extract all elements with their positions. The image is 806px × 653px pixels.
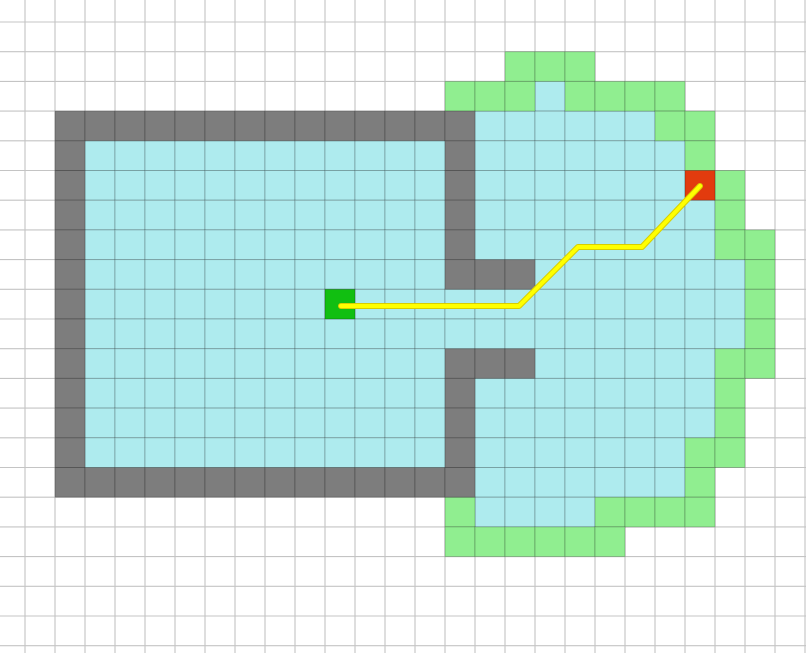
wall-cell <box>55 468 85 498</box>
wall-cell <box>295 111 325 141</box>
frontier-cell <box>655 111 685 141</box>
explored-cell <box>685 230 715 260</box>
explored-cell <box>355 319 385 349</box>
explored-cell <box>175 408 205 438</box>
frontier-cell <box>595 527 625 557</box>
wall-cell <box>205 468 235 498</box>
explored-cell <box>265 171 295 201</box>
wall-cell <box>445 378 475 408</box>
explored-cell <box>625 468 655 498</box>
explored-cell <box>235 319 265 349</box>
wall-cell <box>55 378 85 408</box>
explored-cell <box>355 349 385 379</box>
wall-cell <box>55 349 85 379</box>
explored-cell <box>145 230 175 260</box>
explored-cell <box>85 260 115 290</box>
wall-cell <box>55 408 85 438</box>
explored-cell <box>685 378 715 408</box>
explored-cell <box>625 141 655 171</box>
explored-cell <box>685 349 715 379</box>
explored-cell <box>115 289 145 319</box>
frontier-cell <box>595 81 625 111</box>
explored-cell <box>85 141 115 171</box>
explored-cell <box>205 408 235 438</box>
explored-cell <box>295 438 325 468</box>
explored-cell <box>415 171 445 201</box>
explored-cell <box>355 200 385 230</box>
wall-cell <box>445 171 475 201</box>
explored-cell <box>325 141 355 171</box>
frontier-cell <box>745 230 775 260</box>
wall-cell <box>445 230 475 260</box>
explored-cell <box>505 141 535 171</box>
explored-cell <box>565 438 595 468</box>
frontier-cell <box>475 527 505 557</box>
explored-cell <box>385 230 415 260</box>
wall-cell <box>445 349 475 379</box>
explored-cell <box>565 468 595 498</box>
wall-cell <box>115 111 145 141</box>
explored-cell <box>385 378 415 408</box>
explored-cell <box>535 438 565 468</box>
explored-cell <box>265 319 295 349</box>
explored-cell <box>385 408 415 438</box>
wall-cell <box>445 260 475 290</box>
frontier-cell <box>685 438 715 468</box>
explored-cell <box>175 289 205 319</box>
explored-cell <box>415 260 445 290</box>
explored-cell <box>535 349 565 379</box>
explored-cell <box>355 408 385 438</box>
explored-cell <box>565 497 595 527</box>
explored-cell <box>385 349 415 379</box>
explored-cell <box>115 200 145 230</box>
explored-cell <box>655 230 685 260</box>
wall-cell <box>325 111 355 141</box>
wall-cell <box>415 468 445 498</box>
explored-cell <box>685 408 715 438</box>
explored-cell <box>265 349 295 379</box>
explored-cell <box>295 171 325 201</box>
explored-cell <box>85 349 115 379</box>
explored-cell <box>655 349 685 379</box>
wall-cell <box>55 260 85 290</box>
explored-cell <box>625 438 655 468</box>
explored-cell <box>145 438 175 468</box>
explored-cell <box>85 378 115 408</box>
frontier-cell <box>505 52 535 82</box>
explored-cell <box>115 319 145 349</box>
explored-cell <box>715 260 745 290</box>
wall-cell <box>505 260 535 290</box>
explored-cell <box>595 319 625 349</box>
explored-cell <box>325 230 355 260</box>
explored-cell <box>415 408 445 438</box>
explored-cell <box>565 378 595 408</box>
explored-cell <box>205 200 235 230</box>
wall-cell <box>55 438 85 468</box>
explored-cell <box>505 497 535 527</box>
explored-cell <box>535 171 565 201</box>
explored-cell <box>385 260 415 290</box>
explored-cell <box>145 378 175 408</box>
explored-cell <box>145 260 175 290</box>
explored-cell <box>655 408 685 438</box>
frontier-cell <box>715 438 745 468</box>
explored-cell <box>475 200 505 230</box>
explored-cell <box>685 260 715 290</box>
explored-cell <box>505 230 535 260</box>
explored-cell <box>175 260 205 290</box>
explored-cell <box>505 111 535 141</box>
frontier-cell <box>625 81 655 111</box>
explored-cell <box>595 378 625 408</box>
explored-cell <box>595 349 625 379</box>
explored-cell <box>295 141 325 171</box>
explored-cell <box>235 141 265 171</box>
explored-cell <box>655 378 685 408</box>
wall-cell <box>55 141 85 171</box>
explored-cell <box>265 200 295 230</box>
explored-cell <box>325 171 355 201</box>
frontier-cell <box>685 141 715 171</box>
explored-cell <box>235 230 265 260</box>
frontier-cell <box>655 81 685 111</box>
explored-cell <box>535 111 565 141</box>
wall-cell <box>145 468 175 498</box>
explored-cell <box>445 319 475 349</box>
explored-cell <box>235 349 265 379</box>
explored-cell <box>475 230 505 260</box>
explored-cell <box>685 319 715 349</box>
explored-cell <box>115 141 145 171</box>
explored-cell <box>115 438 145 468</box>
frontier-cell <box>715 200 745 230</box>
wall-cell <box>355 111 385 141</box>
explored-cell <box>295 230 325 260</box>
explored-cell <box>145 349 175 379</box>
explored-cell <box>475 497 505 527</box>
explored-cell <box>175 378 205 408</box>
explored-cell <box>355 141 385 171</box>
explored-cell <box>235 438 265 468</box>
wall-cell <box>205 111 235 141</box>
explored-cell <box>505 319 535 349</box>
explored-cell <box>145 200 175 230</box>
explored-cell <box>85 319 115 349</box>
explored-cell <box>265 408 295 438</box>
wall-cell <box>265 111 295 141</box>
explored-cell <box>115 378 145 408</box>
explored-cell <box>205 438 235 468</box>
frontier-cell <box>625 497 655 527</box>
explored-cell <box>535 81 565 111</box>
wall-cell <box>55 171 85 201</box>
wall-cell <box>115 468 145 498</box>
explored-cell <box>175 319 205 349</box>
explored-cell <box>655 319 685 349</box>
explored-cell <box>415 378 445 408</box>
explored-cell <box>205 378 235 408</box>
explored-cell <box>85 230 115 260</box>
explored-cell <box>325 260 355 290</box>
frontier-cell <box>715 230 745 260</box>
explored-cell <box>115 171 145 201</box>
explored-cell <box>625 378 655 408</box>
explored-cell <box>175 438 205 468</box>
explored-cell <box>175 200 205 230</box>
explored-cell <box>295 378 325 408</box>
explored-cell <box>175 230 205 260</box>
explored-cell <box>325 319 355 349</box>
wall-cell <box>175 111 205 141</box>
explored-cell <box>385 171 415 201</box>
explored-cell <box>655 171 685 201</box>
wall-cell <box>235 111 265 141</box>
explored-cell <box>625 289 655 319</box>
explored-cell <box>295 289 325 319</box>
frontier-cell <box>715 171 745 201</box>
explored-cell <box>235 378 265 408</box>
explored-cell <box>325 408 355 438</box>
wall-cell <box>445 438 475 468</box>
explored-cell <box>625 111 655 141</box>
wall-cell <box>235 468 265 498</box>
wall-cell <box>445 200 475 230</box>
wall-cell <box>445 408 475 438</box>
explored-cell <box>595 260 625 290</box>
explored-cell <box>175 171 205 201</box>
frontier-cell <box>445 497 475 527</box>
explored-cell <box>205 230 235 260</box>
explored-cell <box>325 438 355 468</box>
explored-cell <box>145 171 175 201</box>
explored-cell <box>415 438 445 468</box>
explored-cell <box>355 171 385 201</box>
explored-cell <box>565 289 595 319</box>
frontier-cell <box>685 111 715 141</box>
explored-cell <box>685 200 715 230</box>
explored-cell <box>385 200 415 230</box>
explored-cell <box>295 319 325 349</box>
explored-cell <box>535 468 565 498</box>
wall-cell <box>325 468 355 498</box>
explored-cell <box>595 468 625 498</box>
explored-cell <box>355 230 385 260</box>
explored-cell <box>325 200 355 230</box>
explored-cell <box>85 289 115 319</box>
explored-cell <box>415 349 445 379</box>
explored-cell <box>475 141 505 171</box>
frontier-cell <box>445 527 475 557</box>
wall-cell <box>85 468 115 498</box>
frontier-cell <box>745 260 775 290</box>
wall-cell <box>445 468 475 498</box>
explored-cell <box>655 289 685 319</box>
explored-cell <box>355 378 385 408</box>
explored-cell <box>85 438 115 468</box>
explored-cell <box>205 349 235 379</box>
explored-cell <box>655 438 685 468</box>
explored-cell <box>415 200 445 230</box>
explored-cell <box>235 408 265 438</box>
explored-cell <box>385 438 415 468</box>
wall-cell <box>475 349 505 379</box>
explored-cell <box>205 260 235 290</box>
explored-cell <box>85 408 115 438</box>
explored-cell <box>565 319 595 349</box>
explored-cell <box>595 171 625 201</box>
explored-cell <box>655 260 685 290</box>
wall-cell <box>265 468 295 498</box>
frontier-cell <box>535 52 565 82</box>
frontier-cell <box>475 81 505 111</box>
occupancy-grid-map <box>0 0 806 653</box>
explored-cell <box>535 141 565 171</box>
explored-cell <box>595 408 625 438</box>
explored-cell <box>565 141 595 171</box>
explored-cell <box>505 378 535 408</box>
frontier-cell <box>445 81 475 111</box>
explored-cell <box>535 289 565 319</box>
frontier-cell <box>505 527 535 557</box>
frontier-cell <box>685 468 715 498</box>
frontier-cell <box>715 408 745 438</box>
explored-cell <box>475 468 505 498</box>
explored-cell <box>205 141 235 171</box>
explored-cell <box>415 230 445 260</box>
explored-cell <box>565 408 595 438</box>
wall-cell <box>505 349 535 379</box>
explored-cell <box>535 497 565 527</box>
explored-cell <box>475 408 505 438</box>
frontier-cell <box>565 81 595 111</box>
explored-cell <box>685 289 715 319</box>
frontier-cell <box>685 497 715 527</box>
frontier-cell <box>535 527 565 557</box>
explored-cell <box>295 260 325 290</box>
frontier-cell <box>505 81 535 111</box>
explored-cell <box>505 468 535 498</box>
explored-cell <box>385 319 415 349</box>
explored-cell <box>625 171 655 201</box>
wall-cell <box>385 468 415 498</box>
explored-cell <box>265 438 295 468</box>
explored-cell <box>715 319 745 349</box>
explored-cell <box>505 171 535 201</box>
explored-cell <box>475 171 505 201</box>
frontier-cell <box>745 319 775 349</box>
explored-cell <box>595 289 625 319</box>
explored-cell <box>625 319 655 349</box>
explored-cell <box>85 200 115 230</box>
wall-cell <box>415 111 445 141</box>
frontier-cell <box>715 349 745 379</box>
explored-cell <box>415 141 445 171</box>
explored-cell <box>235 171 265 201</box>
explored-cell <box>175 349 205 379</box>
explored-cell <box>565 111 595 141</box>
frontier-cell <box>565 527 595 557</box>
explored-cell <box>715 289 745 319</box>
explored-cell <box>535 230 565 260</box>
wall-cell <box>85 111 115 141</box>
explored-cell <box>625 349 655 379</box>
wall-cell <box>55 230 85 260</box>
explored-cell <box>505 408 535 438</box>
explored-cell <box>475 319 505 349</box>
explored-cell <box>205 319 235 349</box>
explored-cell <box>265 289 295 319</box>
explored-cell <box>475 378 505 408</box>
explored-cell <box>265 378 295 408</box>
explored-cell <box>265 230 295 260</box>
explored-cell <box>415 319 445 349</box>
wall-cell <box>55 111 85 141</box>
wall-cell <box>55 289 85 319</box>
explored-cell <box>265 260 295 290</box>
explored-cell <box>145 408 175 438</box>
explored-cell <box>625 260 655 290</box>
explored-cell <box>535 200 565 230</box>
explored-cell <box>145 141 175 171</box>
explored-cell <box>625 200 655 230</box>
explored-cell <box>565 171 595 201</box>
explored-cell <box>475 111 505 141</box>
explored-cell <box>535 378 565 408</box>
wall-cell <box>55 200 85 230</box>
explored-cell <box>355 260 385 290</box>
wall-cell <box>445 111 475 141</box>
explored-cell <box>295 349 325 379</box>
grid-map-svg <box>0 0 806 653</box>
wall-cell <box>385 111 415 141</box>
explored-cell <box>85 171 115 201</box>
frontier-cell <box>655 497 685 527</box>
explored-cell <box>235 200 265 230</box>
explored-cell <box>595 200 625 230</box>
explored-cell <box>475 438 505 468</box>
explored-cell <box>235 260 265 290</box>
explored-cell <box>115 260 145 290</box>
wall-cell <box>145 111 175 141</box>
wall-cell <box>355 468 385 498</box>
explored-cell <box>595 438 625 468</box>
explored-cell <box>565 260 595 290</box>
explored-cell <box>295 408 325 438</box>
explored-cell <box>145 319 175 349</box>
explored-cell <box>145 289 175 319</box>
explored-cell <box>355 438 385 468</box>
explored-cell <box>535 319 565 349</box>
explored-cell <box>595 141 625 171</box>
explored-cell <box>565 200 595 230</box>
wall-cell <box>295 468 325 498</box>
wall-cell <box>445 141 475 171</box>
explored-cell <box>175 141 205 171</box>
frontier-cell <box>595 497 625 527</box>
explored-cell <box>655 141 685 171</box>
explored-cell <box>205 171 235 201</box>
explored-cell <box>565 349 595 379</box>
explored-cell <box>625 408 655 438</box>
explored-cell <box>595 111 625 141</box>
explored-cell <box>325 349 355 379</box>
explored-cell <box>385 141 415 171</box>
explored-cell <box>265 141 295 171</box>
wall-cell <box>475 260 505 290</box>
frontier-cell <box>715 378 745 408</box>
